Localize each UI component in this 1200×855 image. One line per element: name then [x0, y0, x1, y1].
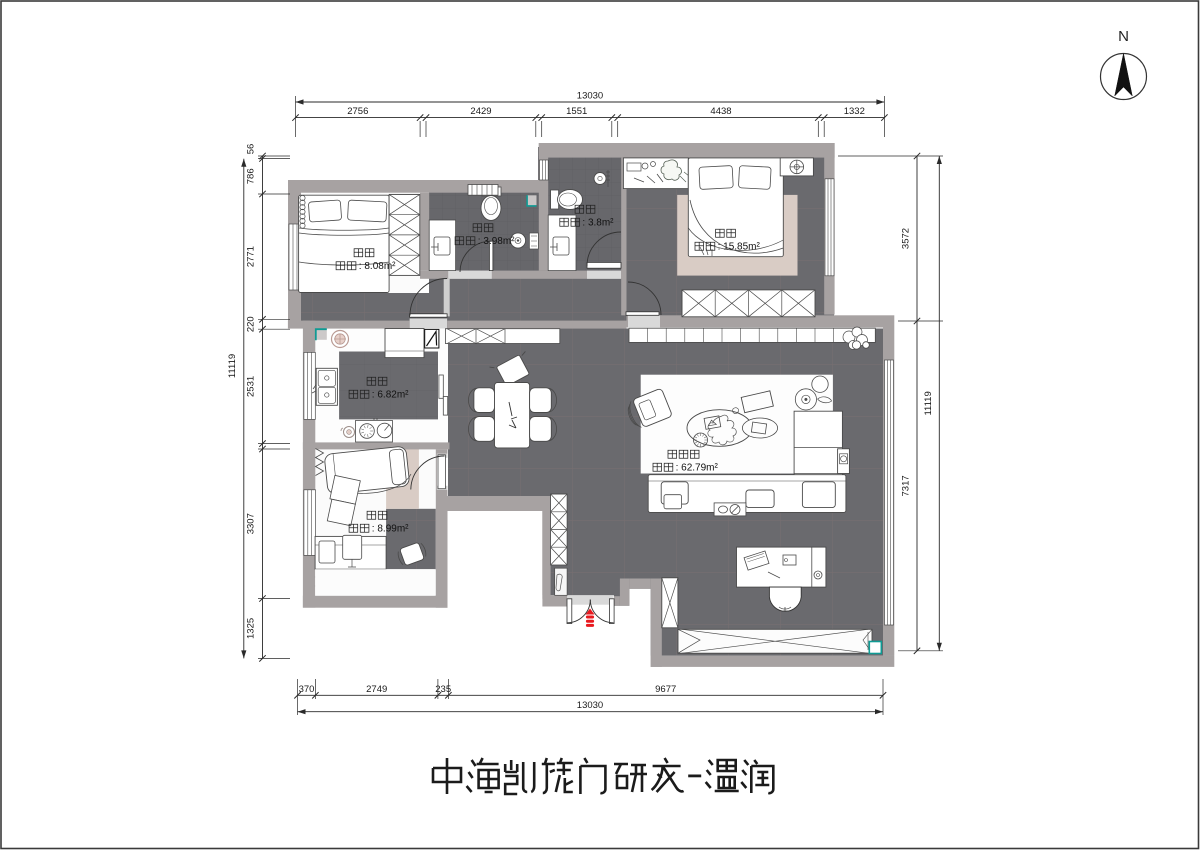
svg-text:1325: 1325 [246, 618, 257, 639]
svg-text:9677: 9677 [655, 684, 676, 695]
svg-text:3572: 3572 [901, 228, 912, 249]
svg-text:: 62.79m²: : 62.79m² [676, 463, 719, 474]
svg-text:: 3.98m²: : 3.98m² [478, 236, 515, 247]
svg-text:: 8.08m²: : 8.08m² [359, 261, 396, 272]
svg-text:3307: 3307 [246, 513, 257, 534]
svg-text:2771: 2771 [246, 246, 257, 267]
svg-text:N: N [1118, 28, 1129, 45]
svg-text:220: 220 [246, 316, 257, 332]
svg-text:2429: 2429 [470, 106, 491, 117]
svg-text:: 15.85m²: : 15.85m² [718, 242, 761, 253]
svg-text:2756: 2756 [347, 106, 368, 117]
svg-text:13030: 13030 [577, 700, 603, 711]
svg-text:13030: 13030 [577, 91, 603, 102]
svg-text:1332: 1332 [844, 106, 865, 117]
svg-text:11119: 11119 [923, 391, 934, 415]
svg-text:235: 235 [435, 684, 451, 695]
svg-text:4438: 4438 [710, 106, 731, 117]
svg-text:2531: 2531 [246, 376, 257, 397]
svg-text:11119: 11119 [227, 354, 238, 378]
svg-text:: 3.8m²: : 3.8m² [582, 218, 614, 229]
svg-text:370: 370 [299, 684, 315, 695]
svg-text:2749: 2749 [366, 684, 387, 695]
svg-text:786: 786 [246, 168, 257, 184]
svg-text:56: 56 [246, 144, 257, 155]
svg-text:7317: 7317 [901, 475, 912, 496]
svg-text:: 6.82m²: : 6.82m² [372, 390, 409, 401]
svg-text:: 8.99m²: : 8.99m² [372, 524, 409, 535]
svg-text:1551: 1551 [566, 106, 587, 117]
